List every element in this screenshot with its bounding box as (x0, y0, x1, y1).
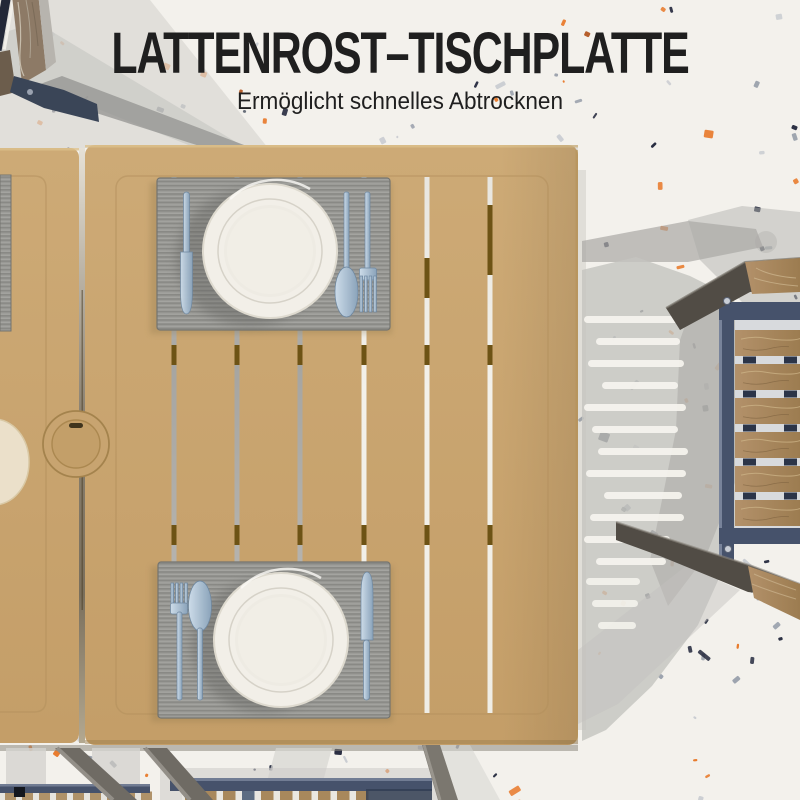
umbrella-hole-cap (43, 411, 109, 477)
placemat-left-partial (0, 175, 11, 331)
place-setting-bottom (151, 562, 393, 722)
place-setting-top (150, 178, 392, 334)
product-image: LATTENROST–TISCHPLATTE Ermöglicht schnel… (0, 0, 800, 800)
scene-illustration (0, 0, 800, 800)
